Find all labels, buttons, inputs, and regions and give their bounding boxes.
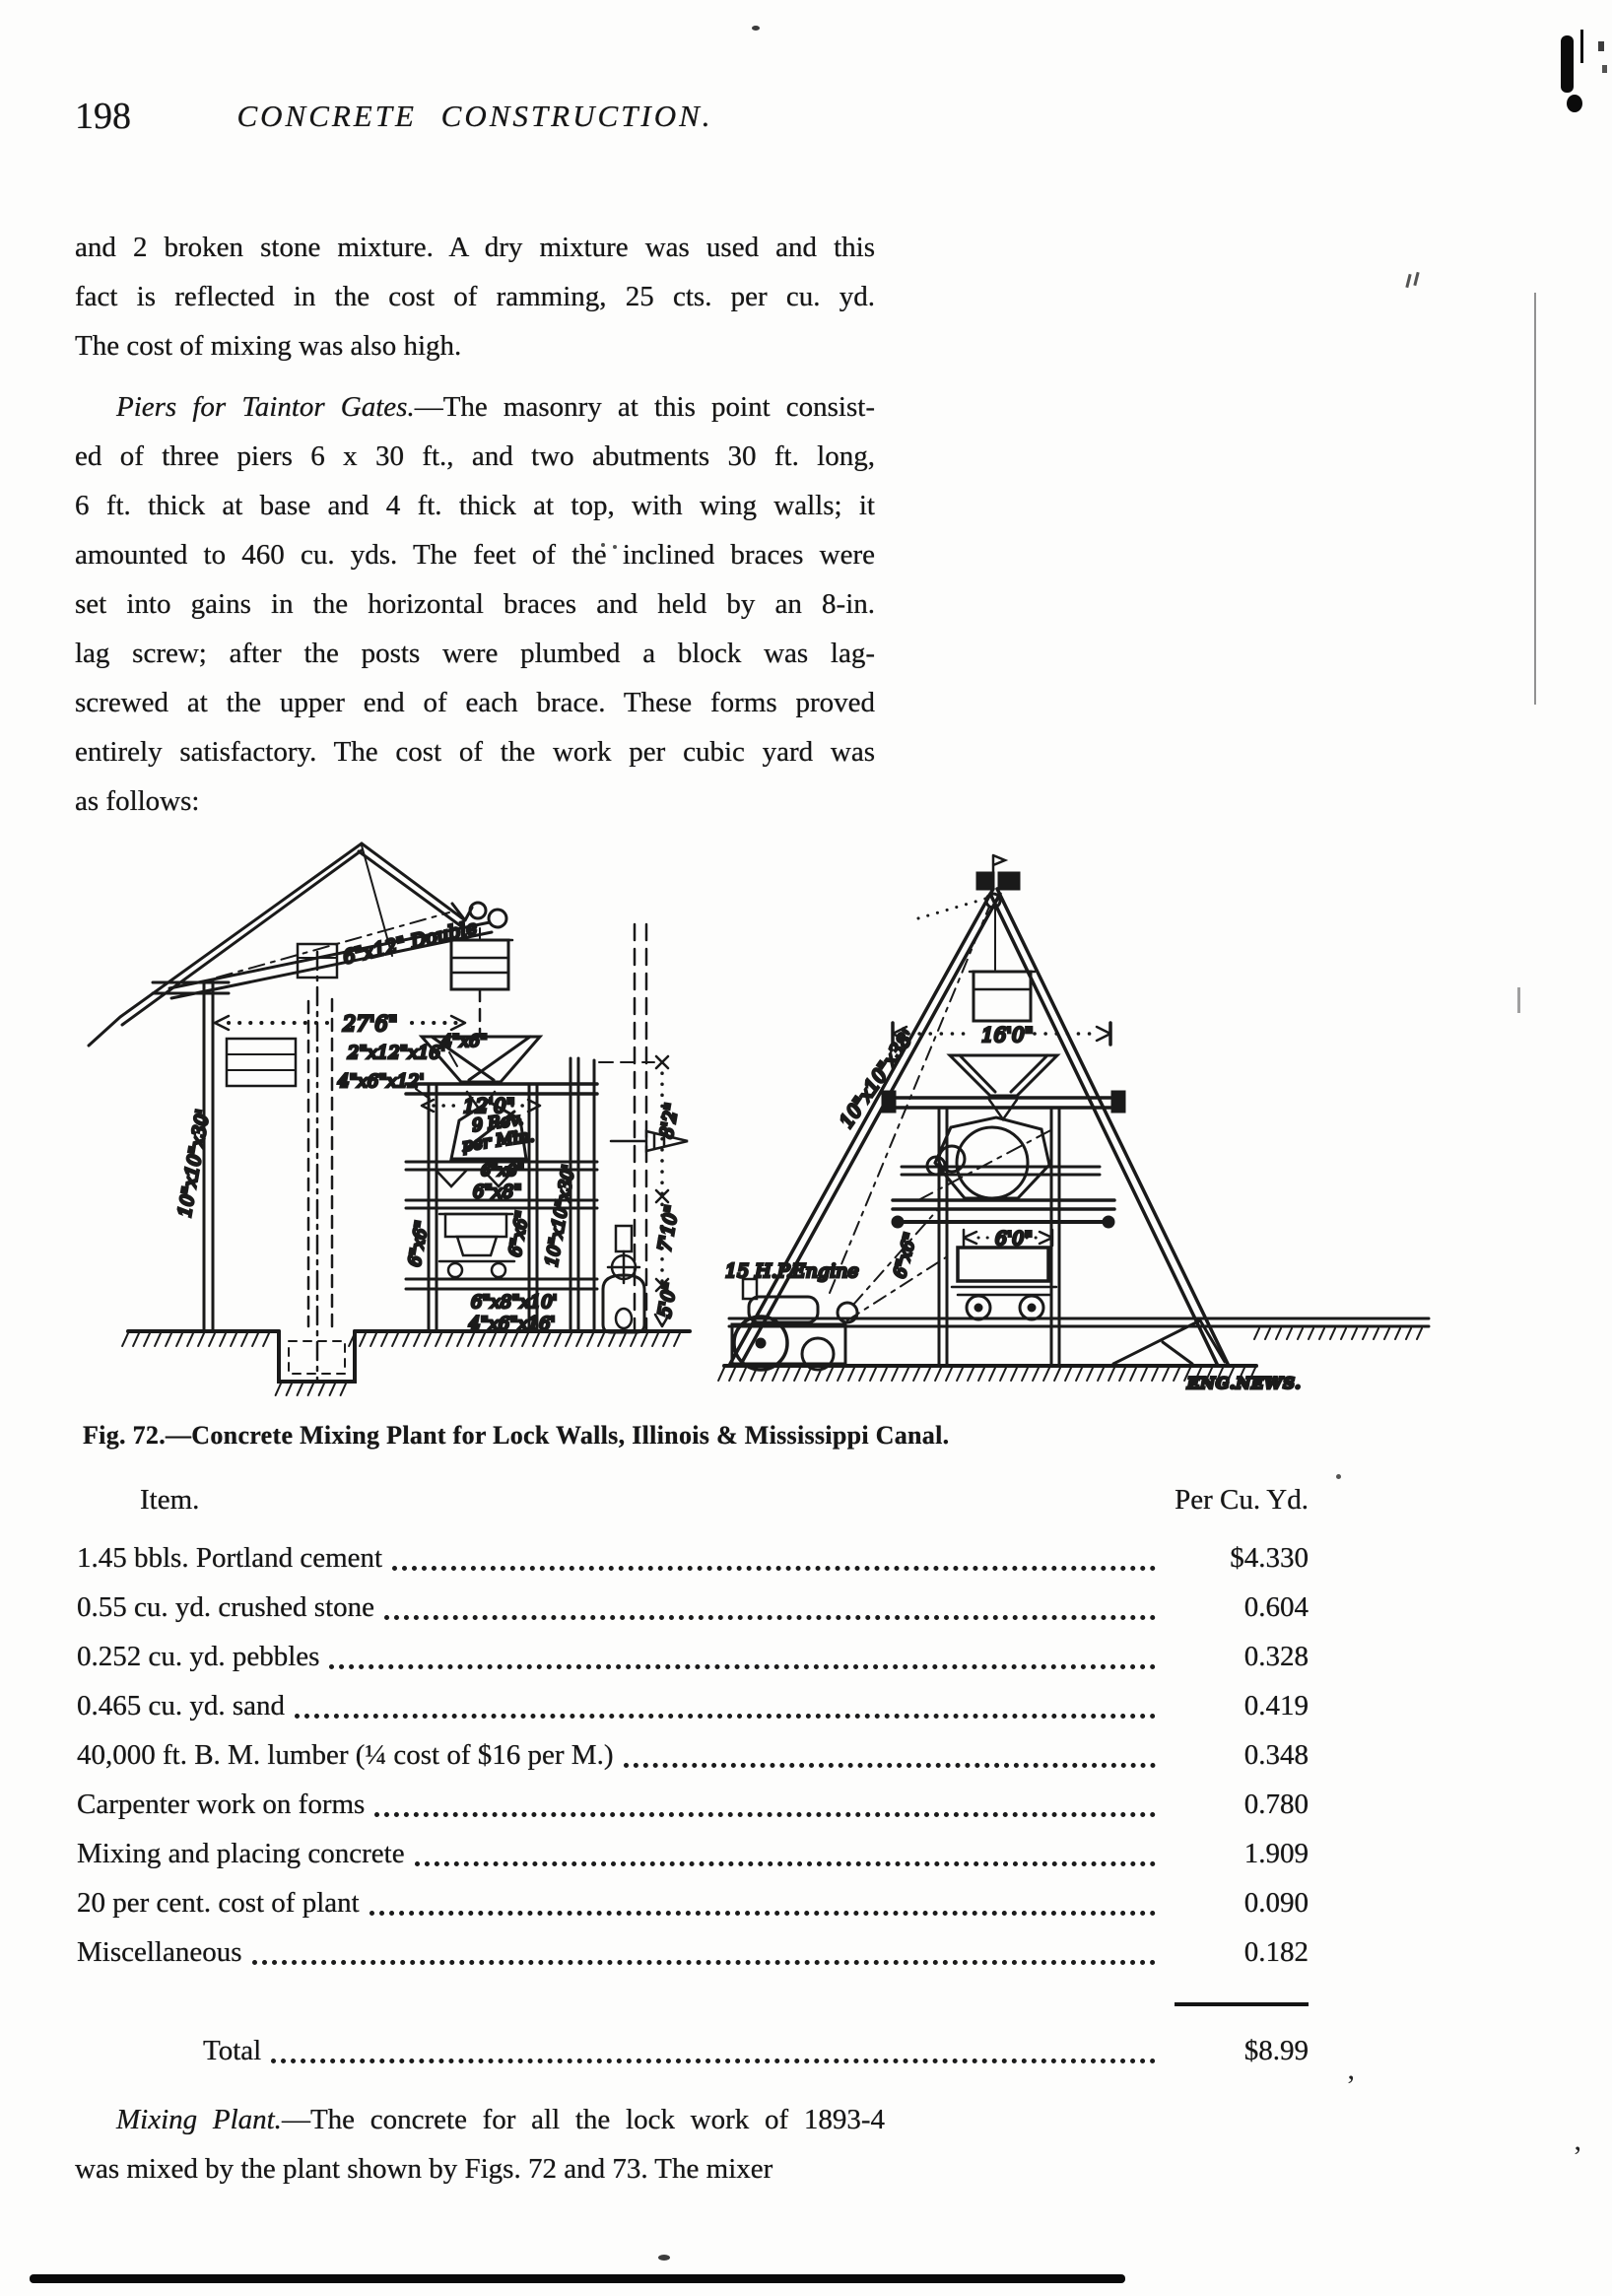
dot-leader [329, 1664, 1156, 1669]
row-item: 1.45 bbls. Portland cement [77, 1533, 382, 1583]
scan-artifact-ink-blob [1561, 35, 1574, 93]
running-title: CONCRETE CONSTRUCTION. [75, 99, 875, 134]
dim-7-10: 7'10" [654, 1203, 683, 1253]
row-value: 0.182 [1166, 1927, 1309, 1977]
text-line: lag screw; after the posts were plumbed … [75, 629, 875, 678]
text-line: entirely satisfactory. The cost of the w… [75, 727, 875, 777]
text-line: Mixing Plant.—The concrete for all the l… [75, 2095, 885, 2144]
row-item: Carpenter work on forms [77, 1780, 365, 1829]
paragraph-intro: and 2 broken stone mixture. A dry mixtur… [75, 223, 875, 371]
scan-artifact-vertical-mark [1517, 987, 1520, 1013]
row-item: 0.465 cu. yd. sand [77, 1681, 285, 1730]
row-value: 0.780 [1166, 1780, 1309, 1829]
total-label: Total [203, 2026, 261, 2075]
table-row: 20 per cent. cost of plant0.090 [77, 1878, 1309, 1927]
scan-artifact-quote: ’ [1346, 2069, 1356, 2103]
figure-credit: ENG.NEWS. [1186, 1374, 1302, 1392]
dim-16-0: 16'0" [981, 1023, 1034, 1047]
dim-27-6: 27'6" [342, 1012, 398, 1036]
row-item: Mixing and placing concrete [77, 1829, 405, 1878]
text-line: 6 ft. thick at base and 4 ft. thick at t… [75, 481, 875, 530]
dim-8-2: 8'2" [656, 1102, 683, 1140]
table-row: 0.55 cu. yd. crushed stone0.604 [77, 1583, 1309, 1632]
dot-leader [271, 2059, 1156, 2063]
table-row: Miscellaneous0.182 [77, 1927, 1309, 1977]
text-line: fact is reflected in the cost of ramming… [75, 272, 875, 321]
dot-leader [252, 1960, 1156, 1965]
figure-72-drawing: 6"x12" Double 10"x10"x30' 27'6" 2"x12"x1… [59, 834, 1537, 1403]
scan-artifact-speck [613, 545, 617, 549]
figure-caption: Fig. 72.—Concrete Mixing Plant for Lock … [83, 1421, 949, 1451]
dot-leader [415, 1861, 1156, 1866]
total-row: Total $8.99 [77, 2026, 1309, 2075]
dot-leader [392, 1566, 1156, 1571]
scan-artifact-ink-line [1580, 30, 1583, 63]
scan-artifact-bottom-strip [30, 2274, 1125, 2283]
row-value: $4.330 [1166, 1533, 1309, 1583]
label-10x10x30-b: 10"x10"x30' [542, 1164, 579, 1268]
section-lead-rest: —The concrete for all the lock work of 1… [282, 2104, 885, 2135]
dot-leader [369, 1911, 1156, 1916]
text-line: was mixed by the plant shown by Figs. 72… [75, 2144, 885, 2194]
dot-leader [384, 1615, 1156, 1620]
row-item: 0.252 cu. yd. pebbles [77, 1632, 319, 1681]
label-6x8x10: 6"x8"x10' [471, 1292, 558, 1313]
section-lead-rest: —The masonry at this point consist- [415, 391, 875, 423]
table-row: 0.252 cu. yd. pebbles0.328 [77, 1632, 1309, 1681]
text-line: and 2 broken stone mixture. A dry mixtur… [75, 223, 875, 272]
table-row: Carpenter work on forms0.780 [77, 1780, 1309, 1829]
left-drawing-mixing-shed: 6"x12" Double 10"x10"x30' 27'6" 2"x12"x1… [89, 844, 690, 1395]
total-value: $8.99 [1166, 2026, 1309, 2075]
figure-72: 6"x12" Double 10"x10"x30' 27'6" 2"x12"x1… [59, 834, 1537, 1403]
scan-artifact-speck [1336, 1474, 1341, 1479]
section-lead-italic: Piers for Taintor Gates. [116, 391, 415, 423]
row-value: 0.419 [1166, 1681, 1309, 1730]
table-row: Mixing and placing concrete1.909 [77, 1829, 1309, 1878]
scan-artifact-tick [1405, 274, 1411, 288]
scan-artifact-speck [1598, 41, 1604, 51]
row-value: 0.090 [1166, 1878, 1309, 1927]
label-4x6x12: 4"x6"x12' [337, 1071, 425, 1092]
dot-leader [624, 1763, 1157, 1768]
column-header-item: Item. [140, 1472, 199, 1533]
paragraph-mixing-plant: Mixing Plant.—The concrete for all the l… [75, 2095, 885, 2194]
column-header-value: Per Cu. Yd. [1175, 1472, 1309, 1533]
sum-rule [1175, 2002, 1309, 2006]
scan-artifact-speck [1602, 65, 1607, 73]
boom-label: 6"x12" Double [341, 916, 479, 969]
scan-artifact-speck [658, 2255, 670, 2261]
text-line: screwed at the upper end of each brace. … [75, 678, 875, 727]
table-row: 1.45 bbls. Portland cement$4.330 [77, 1533, 1309, 1583]
text-line: as follows: [75, 777, 875, 826]
text-line: The cost of mixing was also high. [75, 321, 875, 371]
scan-artifact-quote: ’ [1573, 2140, 1582, 2174]
text-line: amounted to 460 cu. yds. The feet of the… [75, 530, 875, 579]
row-item: 40,000 ft. B. M. lumber (¼ cost of $16 p… [77, 1730, 614, 1780]
dot-leader [374, 1812, 1156, 1817]
right-drawing-aframe-derrick: 16'0" 6'0" [718, 855, 1429, 1392]
left-post-label: 10"x10"x30' [174, 1108, 214, 1218]
scan-artifact-vertical-line [1534, 293, 1536, 705]
table-row: 0.465 cu. yd. sand0.419 [77, 1681, 1309, 1730]
text-line: set into gains in the horizontal braces … [75, 579, 875, 629]
label-6x8-b: 6"x8" [473, 1182, 522, 1202]
scan-artifact-speck [601, 543, 605, 547]
table-row: 40,000 ft. B. M. lumber (¼ cost of $16 p… [77, 1730, 1309, 1780]
scan-artifact-speck [752, 26, 760, 31]
dim-5-0: 5'0" [654, 1281, 681, 1319]
row-value: 0.348 [1166, 1730, 1309, 1780]
book-page: 198 CONCRETE CONSTRUCTION. and 2 broken … [0, 0, 1612, 2296]
dot-leader [295, 1714, 1156, 1719]
row-item: 20 per cent. cost of plant [77, 1878, 360, 1927]
text-line: ed of three piers 6 x 30 ft., and two ab… [75, 432, 875, 481]
cost-table: Item. Per Cu. Yd. 1.45 bbls. Portland ce… [77, 1472, 1309, 1977]
text-line: Piers for Taintor Gates.—The masonry at … [75, 382, 875, 432]
row-value: 0.328 [1166, 1632, 1309, 1681]
row-value: 1.909 [1166, 1829, 1309, 1878]
cost-table-header: Item. Per Cu. Yd. [77, 1472, 1309, 1533]
row-value: 0.604 [1166, 1583, 1309, 1632]
scan-artifact-tick [1413, 272, 1419, 286]
label-6x6-right: 6"x6" [891, 1231, 921, 1280]
scan-artifact-ink-blob [1567, 95, 1582, 112]
row-item: 0.55 cu. yd. crushed stone [77, 1583, 374, 1632]
row-item: Miscellaneous [77, 1927, 242, 1977]
section-lead-italic: Mixing Plant. [116, 2104, 282, 2135]
paragraph-piers: Piers for Taintor Gates.—The masonry at … [75, 382, 875, 826]
